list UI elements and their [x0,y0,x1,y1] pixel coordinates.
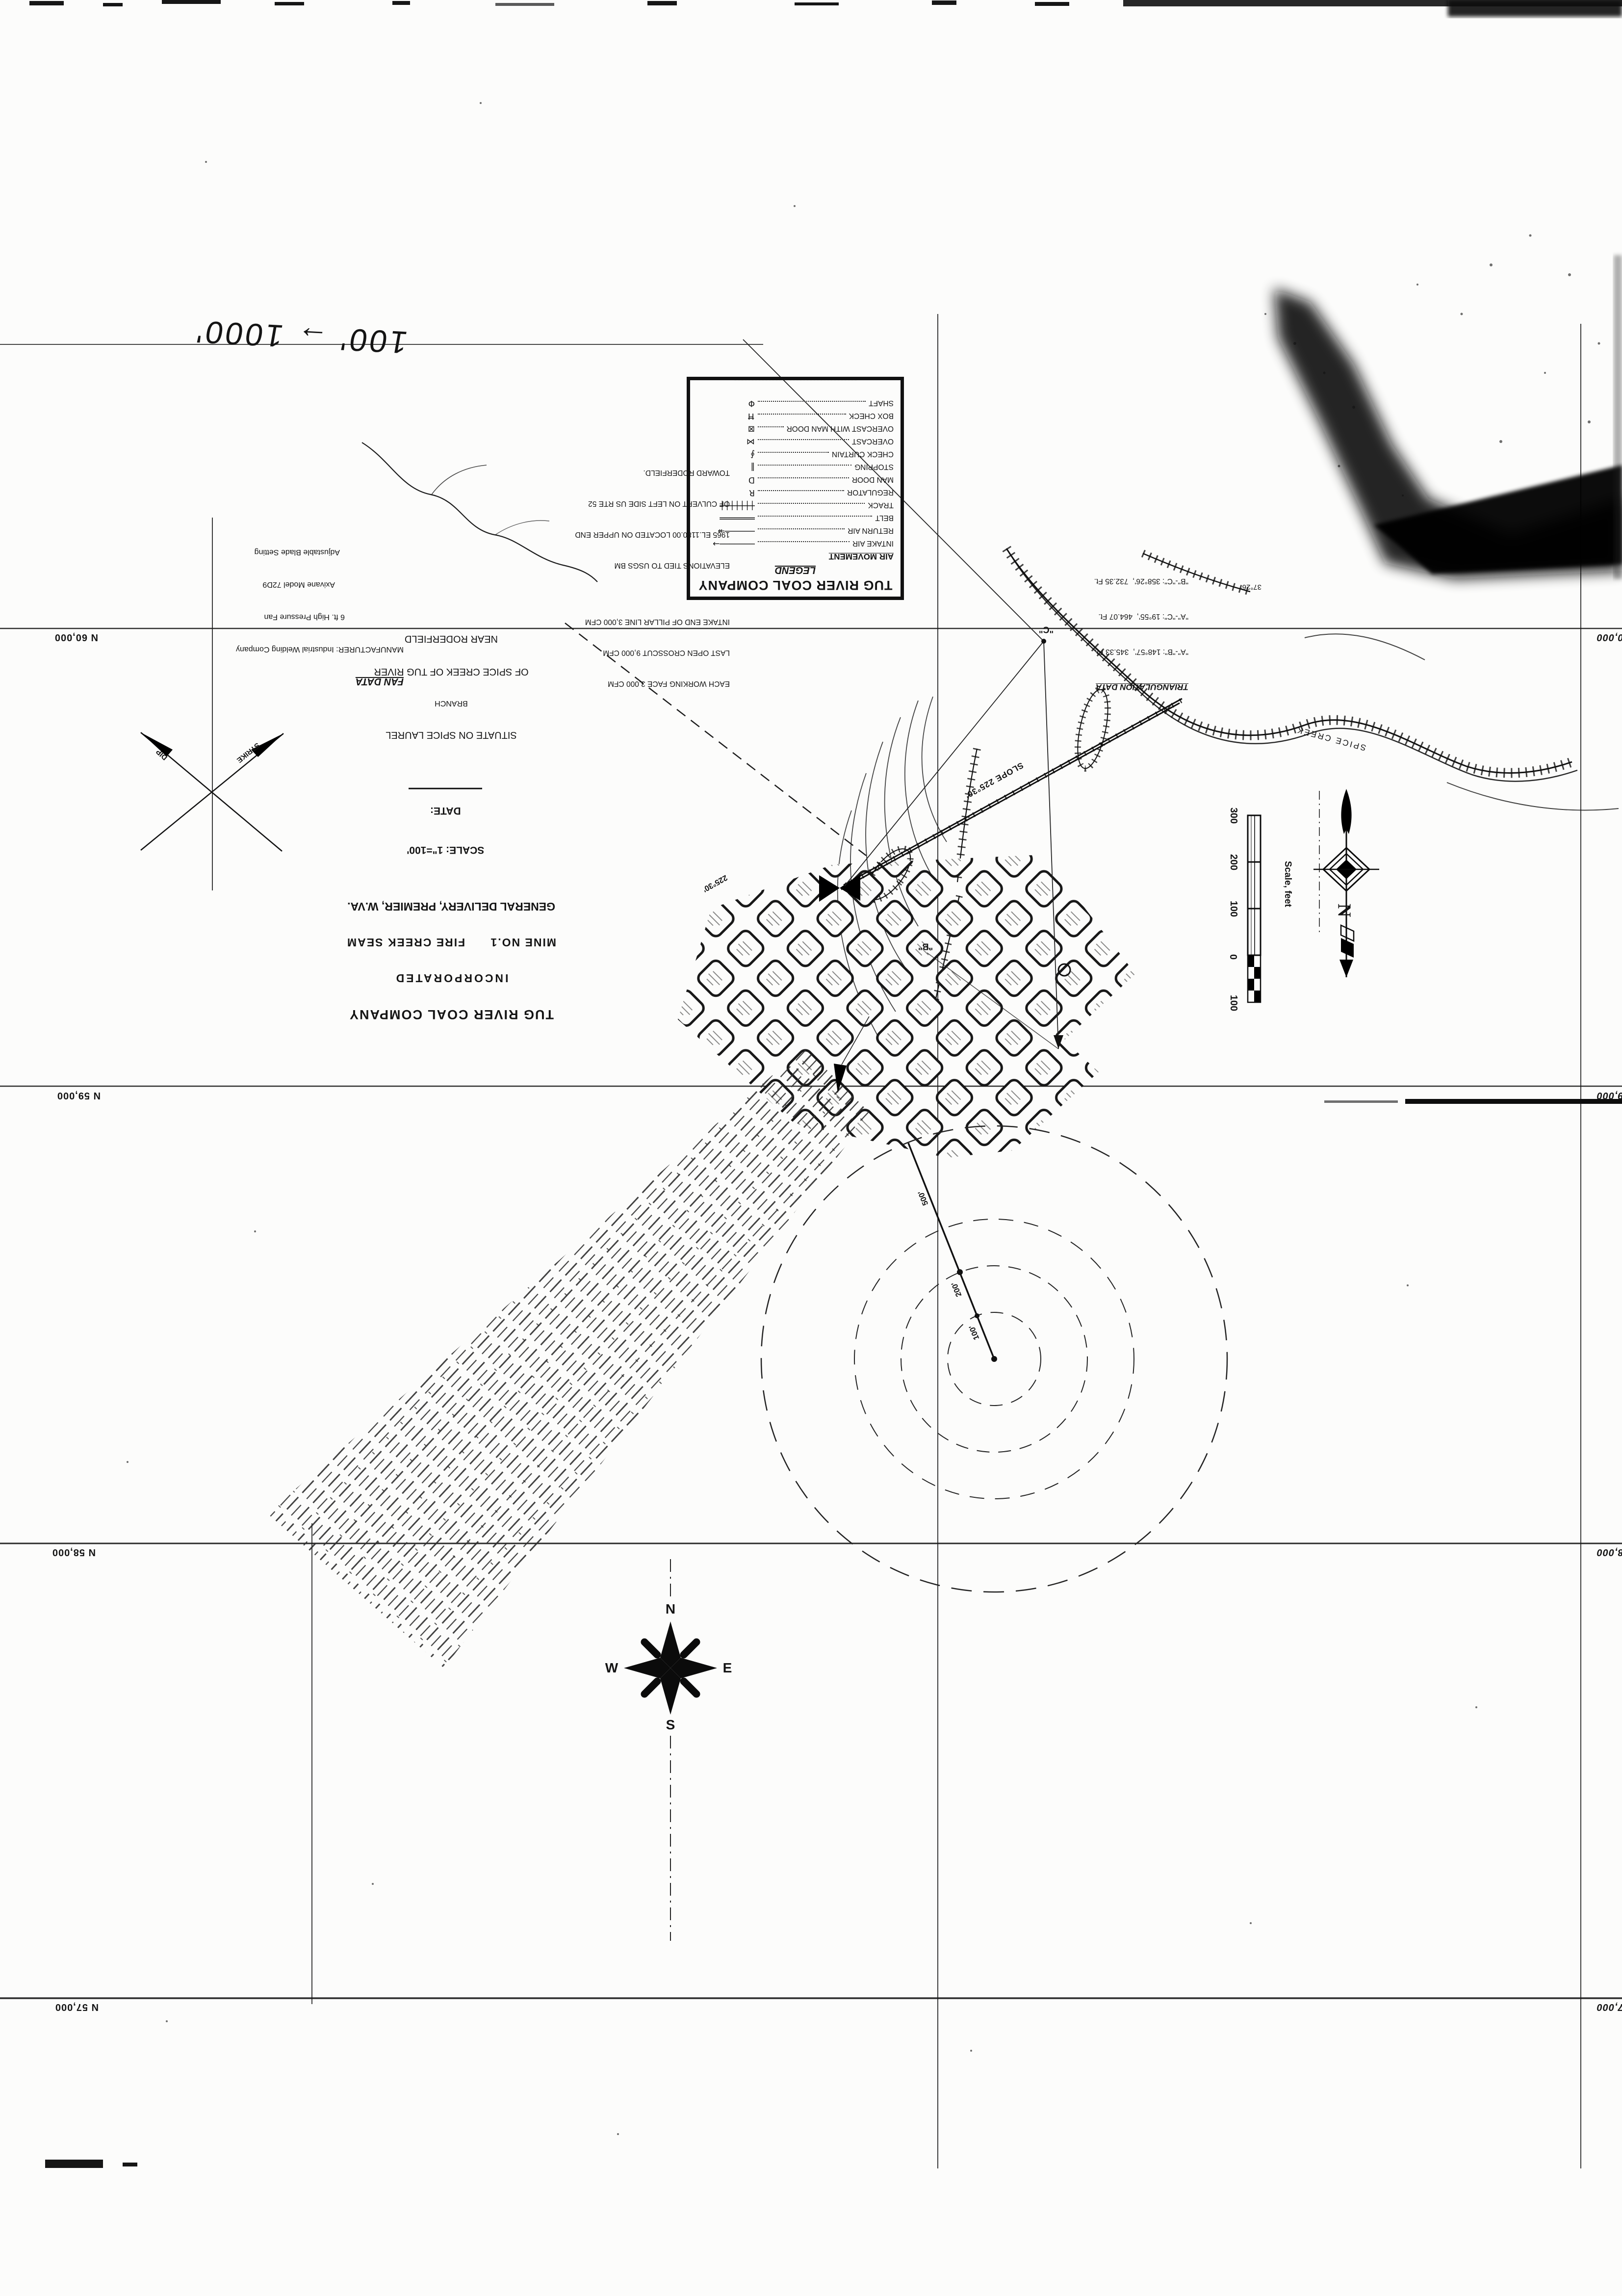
mine-workings-projected [267,1047,871,1668]
grid-label-right-60000: 60,000 [1585,631,1622,643]
dotted-leader [758,541,850,543]
bearing-note: 37°26' [1203,582,1262,591]
box-check-symbol: Ħ [697,411,755,421]
legend-row: BOX CHECKĦ [697,411,894,424]
heavy-line-artifact-fade [1324,1100,1398,1103]
mine-seam-line: MINE NO.1 FIRE CREEK SEAM [314,934,589,951]
dotted-leader [758,452,829,453]
faint-stamp-line [734,377,857,380]
well-radius-line [908,1143,997,1362]
grid-label-n57000: N 57,000 [18,2001,99,2013]
grid-label-n59000: N 59,000 [20,1089,101,1101]
dotted-leader [758,439,849,441]
scale-tick-100: 100 [1227,901,1239,917]
north-arrow [1313,789,1379,977]
station-b-label: "B" [918,941,933,952]
dotted-leader [758,516,872,517]
grid-label-n58000: N 58,000 [15,1546,96,1558]
overcast-symbol: ⋈ [697,437,755,446]
grid-label-right-57000: 57,000 [1585,2001,1622,2013]
dotted-leader [758,477,849,479]
scanned-mine-map: 100' → 1000' TUG RIVER COAL COMPANY LEGE… [0,0,1622,2296]
overcast-man-door-symbol: ⊠ [697,424,755,434]
compass-e: E [720,1659,735,1676]
title-company: TUG RIVER COAL COMPANY [314,1006,589,1022]
shaft-legend-symbol: Φ [697,398,755,408]
triangulation-block: TRIANGULATION DATA "A"-"B": 148°57', 345… [1019,563,1188,716]
dotted-leader [758,490,844,492]
scale-tick-100b: 100 [1227,995,1239,1011]
station-c-label: "C" [1039,624,1054,635]
scale-bar [1248,815,1261,1002]
legend-row: SHAFTΦ [697,398,894,411]
grid-label-right-58000: 58,000 [1585,1546,1622,1558]
scale-tick-300: 300 [1227,808,1239,824]
title-block: TUG RIVER COAL COMPANY INCORPORATED MINE… [314,622,589,1042]
north-arrow-letter: N [1332,904,1356,917]
compass-n: N [663,1600,678,1618]
scale-tick-0: 0 [1227,954,1239,960]
date-blank-line [409,788,482,799]
scale-date-line: SCALE: 1"=100' DATE: [314,761,589,879]
compass-w: W [604,1659,619,1676]
legend-row: OVERCAST WITH MAN DOOR⊠ [697,424,894,437]
legend-row: OVERCAST⋈ [697,437,894,449]
scale-tick-200: 200 [1227,854,1239,870]
dotted-leader [758,503,865,504]
dotted-leader [758,401,866,402]
triangulation-title: TRIANGULATION DATA [1019,681,1188,693]
dotted-leader [758,528,845,530]
scale-caption: Scale, feet [1282,861,1293,907]
grid-label-n60000: N 60,000 [17,631,98,643]
compass-s: S [663,1716,678,1733]
dotted-leader [758,465,851,466]
dotted-leader [758,426,784,428]
grid-label-right-59000: 59,000 [1585,1089,1622,1101]
dotted-leader [758,414,846,415]
